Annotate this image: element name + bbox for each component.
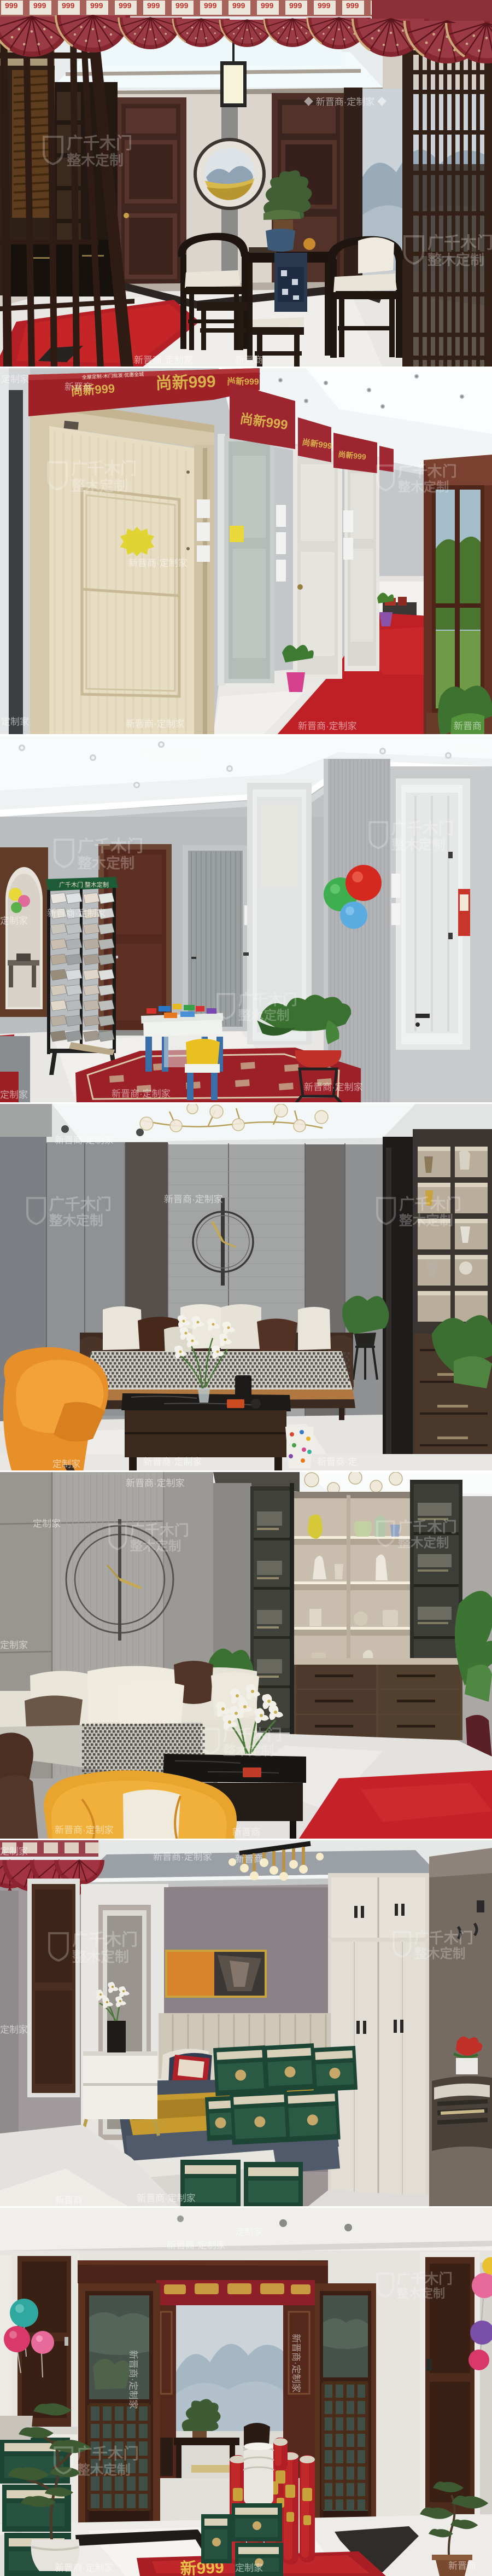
- svg-text:新晋商·定制家: 新晋商·定制家: [164, 1194, 223, 1205]
- svg-text:新晋商·定制家: 新晋商·定制家: [128, 2350, 138, 2409]
- svg-text:整木定制: 整木定制: [223, 1743, 274, 1758]
- svg-text:999: 999: [5, 1, 18, 10]
- svg-text:定制家: 定制家: [1, 374, 29, 385]
- svg-text:整木定制: 整木定制: [399, 1212, 453, 1228]
- svg-text:定制家: 定制家: [0, 1846, 28, 1857]
- svg-text:整木定制: 整木定制: [398, 479, 449, 494]
- svg-text:新晋商·定制家: 新晋商·定制家: [298, 721, 357, 731]
- svg-text:定制家: 定制家: [0, 916, 28, 926]
- svg-text:新晋商·定制家: 新晋商·定制家: [143, 1457, 202, 1467]
- svg-text:◆ 新晋商·定制家 ◆: ◆ 新晋商·定制家 ◆: [304, 97, 386, 107]
- svg-text:999: 999: [346, 1, 359, 10]
- svg-text:广千木门: 广千木门: [397, 2271, 453, 2287]
- svg-text:新晋商·定制家: 新晋商·定制家: [291, 2334, 301, 2393]
- svg-text:新晋商·定制家: 新晋商·定制家: [153, 1852, 212, 1862]
- svg-text:定制家: 定制家: [1, 717, 29, 727]
- svg-text:999: 999: [62, 1, 75, 10]
- svg-text:999: 999: [204, 1, 217, 10]
- svg-text:整木定制: 整木定制: [72, 1949, 129, 1965]
- svg-text:新晋商: 新晋商: [232, 1827, 260, 1837]
- svg-text:999: 999: [261, 1, 274, 10]
- svg-text:新晋商·定制家: 新晋商·定制家: [128, 558, 188, 568]
- svg-text:999: 999: [318, 1, 331, 10]
- svg-text:新晋商: 新晋商: [65, 382, 92, 392]
- svg-text:新晋商·定制家: 新晋商·定制家: [112, 1089, 171, 1099]
- svg-text:整木定制: 整木定制: [427, 252, 484, 268]
- svg-text:新晋商·定制家: 新晋商·定制家: [55, 1825, 114, 1835]
- svg-text:999: 999: [90, 1, 103, 10]
- svg-text:定制家: 定制家: [52, 1459, 80, 1469]
- svg-text:整木定制: 整木定制: [130, 1538, 181, 1553]
- svg-text:新晋商: 新晋商: [448, 2561, 476, 2571]
- svg-text:999: 999: [289, 1, 302, 10]
- svg-text:广千木门: 广千木门: [71, 460, 137, 478]
- svg-text:广千木门: 广千木门: [398, 1519, 457, 1536]
- svg-text:定制家: 定制家: [33, 1519, 61, 1529]
- svg-text:广千木门: 广千木门: [130, 1522, 189, 1539]
- svg-text:整木定制: 整木定制: [71, 478, 128, 494]
- svg-text:整木定制: 整木定制: [398, 1535, 449, 1550]
- svg-text:广千木门: 广千木门: [427, 234, 492, 252]
- svg-text:整木定制: 整木定制: [391, 836, 446, 852]
- svg-text:新晋商·定制家: 新晋商·定制家: [167, 2240, 226, 2251]
- svg-text:999: 999: [119, 1, 132, 10]
- svg-text:新晋商·定制家: 新晋商·定制家: [55, 2563, 114, 2573]
- svg-text:999: 999: [175, 1, 189, 10]
- svg-text:广千木门: 广千木门: [223, 1727, 282, 1743]
- svg-text:999: 999: [33, 1, 46, 10]
- svg-text:广千木门: 广千木门: [391, 820, 454, 838]
- svg-text:定制家: 定制家: [235, 2227, 263, 2237]
- svg-text:广千木门: 广千木门: [77, 2445, 139, 2463]
- svg-text:整木定制: 整木定制: [49, 1212, 103, 1228]
- svg-text:尚新999: 尚新999: [155, 373, 216, 393]
- svg-text:定制家: 定制家: [0, 2025, 28, 2035]
- svg-text:新晋商·定制家: 新晋商·定制家: [55, 1135, 114, 1145]
- svg-text:新晋商·定制家: 新晋商·定制家: [142, 749, 201, 760]
- svg-text:新晋商·定制家: 新晋商·定制家: [126, 1478, 185, 1488]
- svg-text:广千木门: 广千木门: [67, 135, 132, 153]
- svg-text:新晋商·定制家: 新晋商·定制家: [134, 355, 193, 365]
- svg-text:新晋商·定: 新晋商·定: [317, 1457, 358, 1467]
- svg-text:新晋商: 新晋商: [235, 355, 263, 365]
- svg-text:广千木门: 广千木门: [414, 1930, 473, 1946]
- svg-text:整木定制: 整木定制: [77, 2462, 131, 2478]
- svg-text:整木定制: 整木定制: [397, 2287, 445, 2300]
- svg-text:新晋商·定制家: 新晋商·定制家: [137, 2193, 196, 2203]
- svg-text:定制家: 定制家: [0, 1640, 28, 1650]
- svg-text:新晋商: 新晋商: [235, 1854, 263, 1864]
- svg-text:整木定制: 整木定制: [67, 152, 124, 168]
- svg-text:广千木门: 广千木门: [398, 463, 457, 480]
- svg-text:整木定制: 整木定制: [414, 1946, 466, 1961]
- svg-text:广千木门 整木定制: 广千木门 整木定制: [59, 881, 109, 888]
- svg-text:广千木门: 广千木门: [49, 1196, 112, 1213]
- svg-text:新晋商·定制家: 新晋商·定制家: [304, 1082, 363, 1092]
- svg-text:新晋商·定制家: 新晋商·定制家: [47, 908, 106, 918]
- svg-text:定制家: 定制家: [0, 1090, 28, 1100]
- svg-text:广千木门: 广千木门: [72, 1931, 138, 1949]
- svg-text:999: 999: [147, 1, 160, 10]
- svg-text:广千木门: 广千木门: [78, 838, 143, 856]
- svg-text:广千木门: 广千木门: [399, 1196, 461, 1213]
- svg-text:新晋商: 新晋商: [455, 744, 483, 754]
- svg-text:整木定制: 整木定制: [238, 1008, 290, 1022]
- svg-text:999: 999: [232, 1, 245, 10]
- svg-text:整木定制: 整木定制: [78, 855, 134, 871]
- svg-text:新晋商: 新晋商: [55, 2195, 83, 2206]
- svg-text:新晋商: 新晋商: [454, 721, 482, 731]
- svg-text:新晋商·定制家: 新晋商·定制家: [126, 719, 185, 729]
- svg-text:广千木门: 广千木门: [238, 992, 297, 1008]
- svg-text:定制家: 定制家: [235, 2563, 263, 2573]
